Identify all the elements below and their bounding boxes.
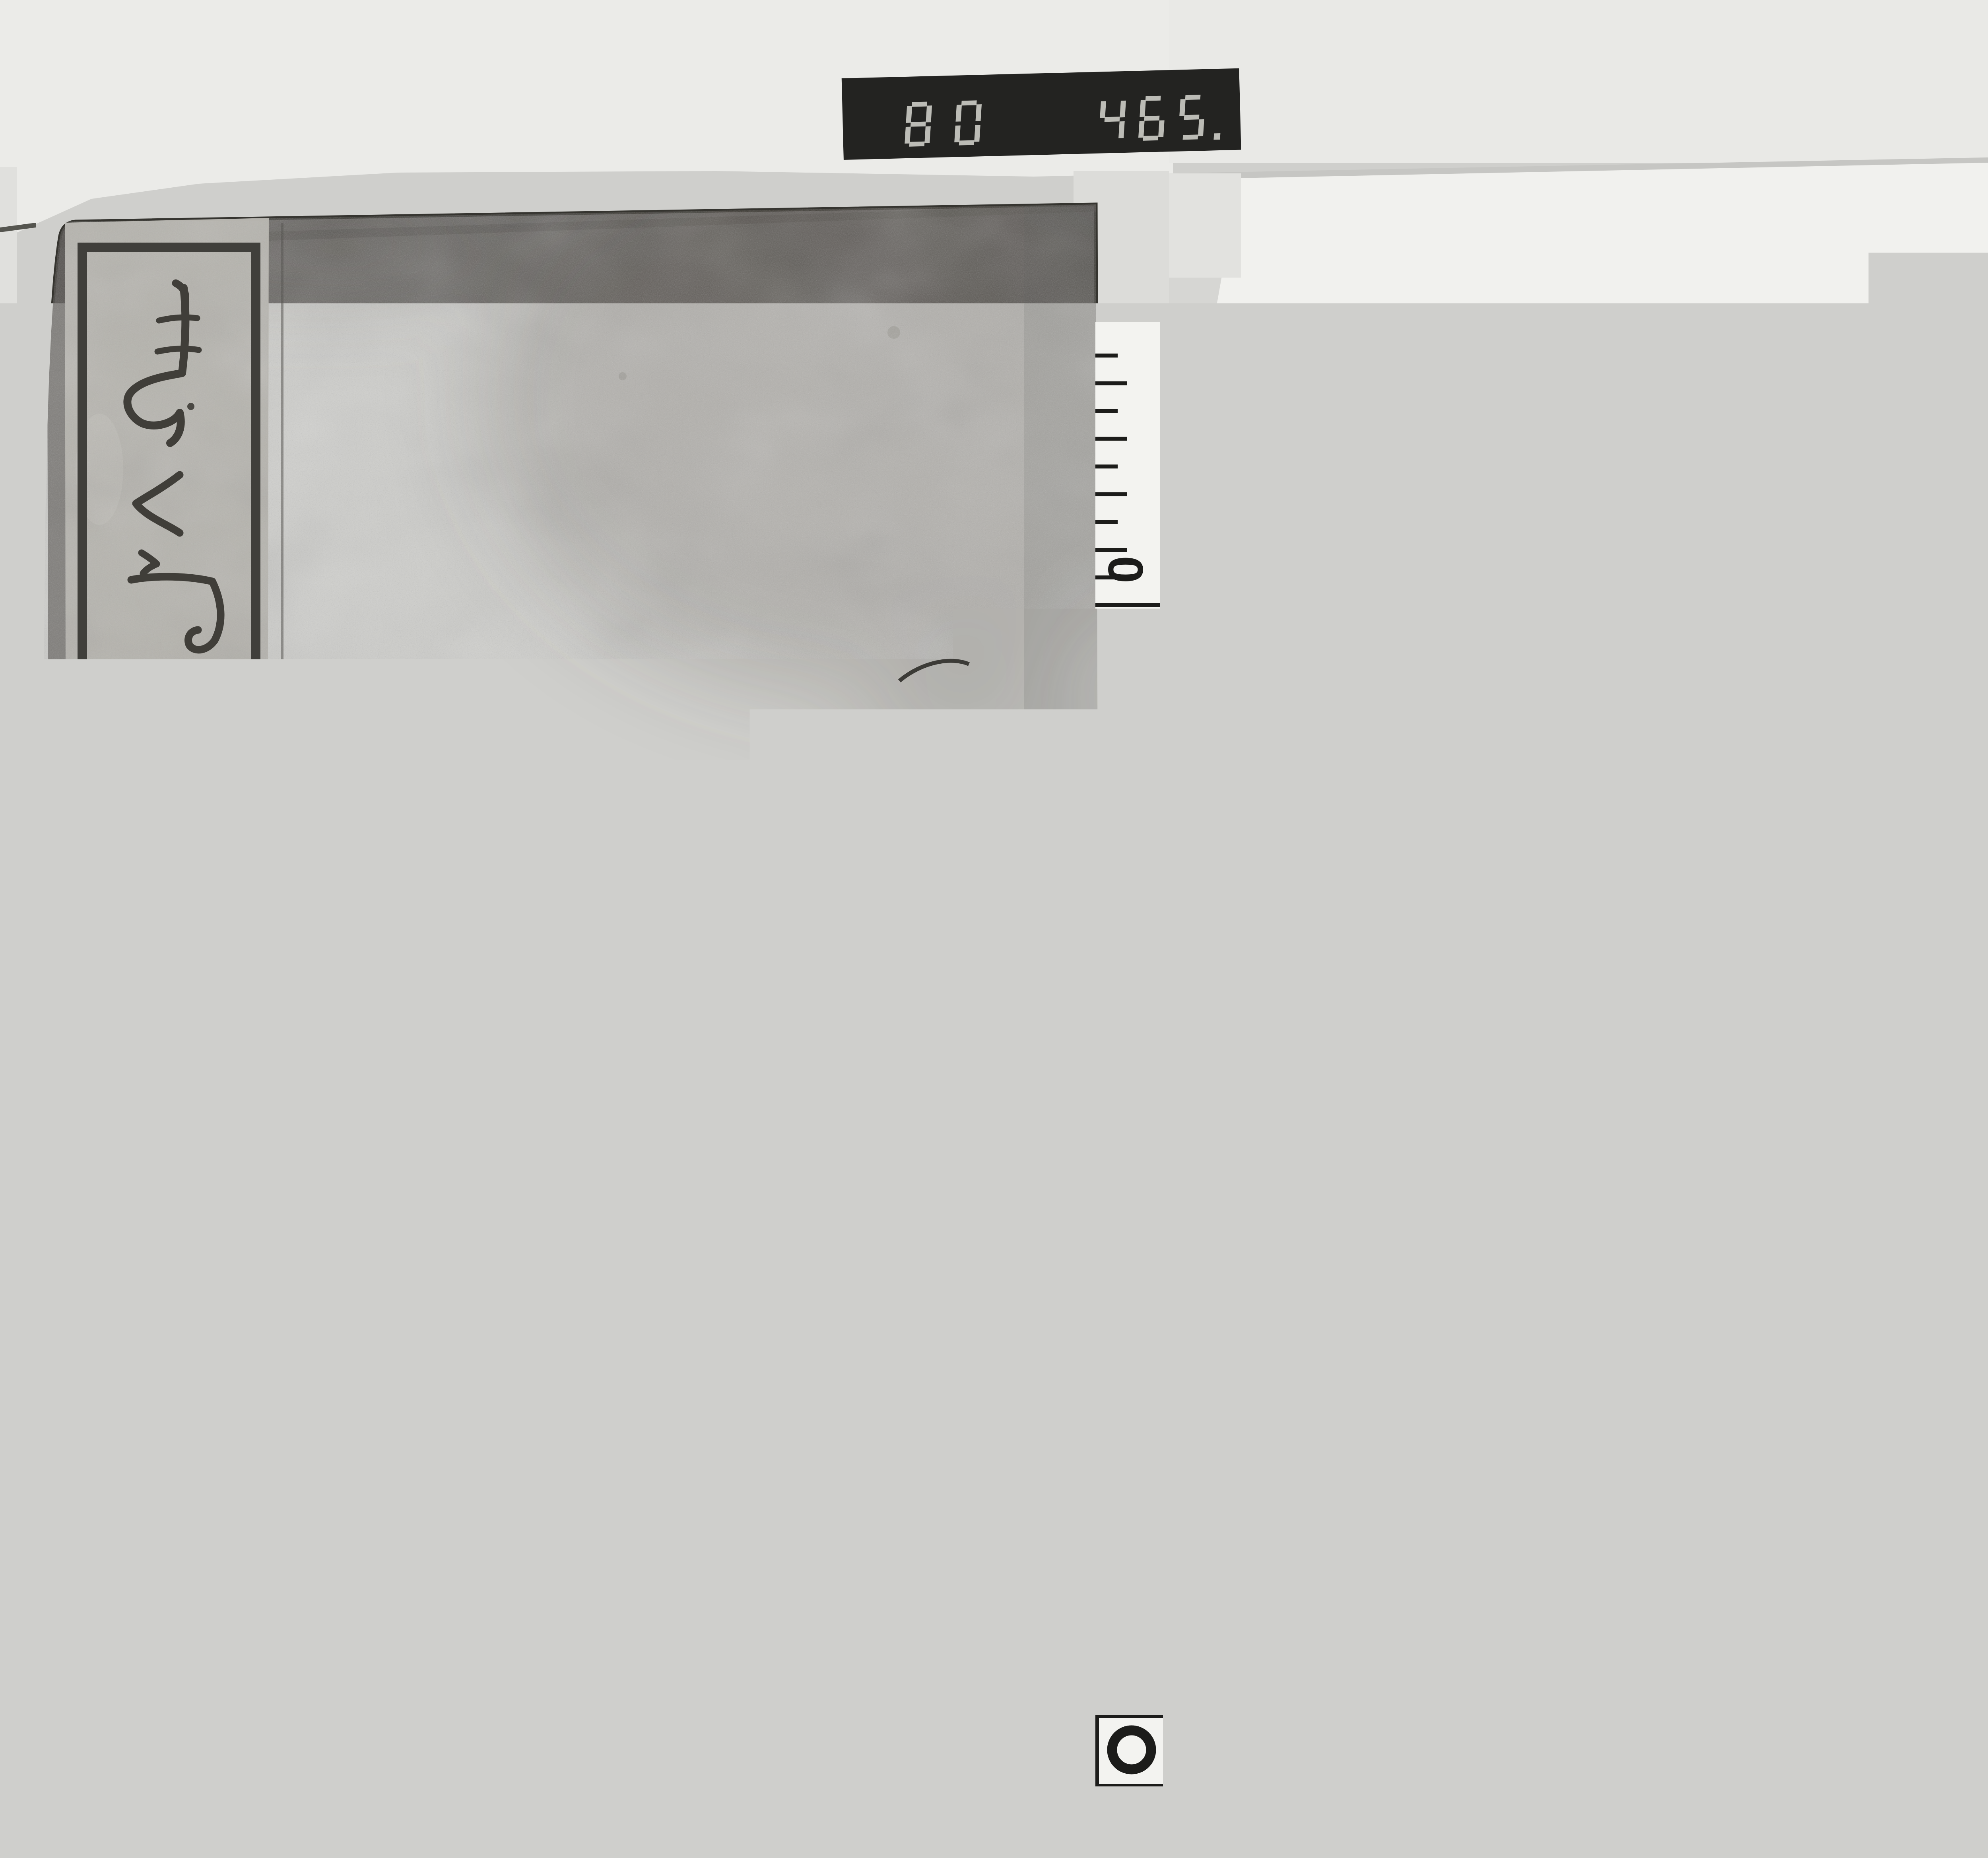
svg-text:2: 2 [1099,620,1153,647]
svg-text:484: 484 [877,1568,922,1597]
svg-text:1: 1 [1099,1169,1153,1197]
svg-text:0: 0 [825,1720,860,1791]
svg-text:7: 7 [215,1723,251,1794]
svg-text:0: 0 [1099,1116,1153,1143]
svg-text:1 2: 1 2 [878,1524,923,1553]
svg-text:0: 0 [1099,556,1153,583]
svg-text:8: 8 [777,1720,813,1791]
svg-text:0: 0 [262,1723,298,1794]
svg-text:1: 1 [907,1617,922,1646]
svg-text:SEKISUI JUSHI: SEKISUI JUSHI [1126,847,1147,1000]
